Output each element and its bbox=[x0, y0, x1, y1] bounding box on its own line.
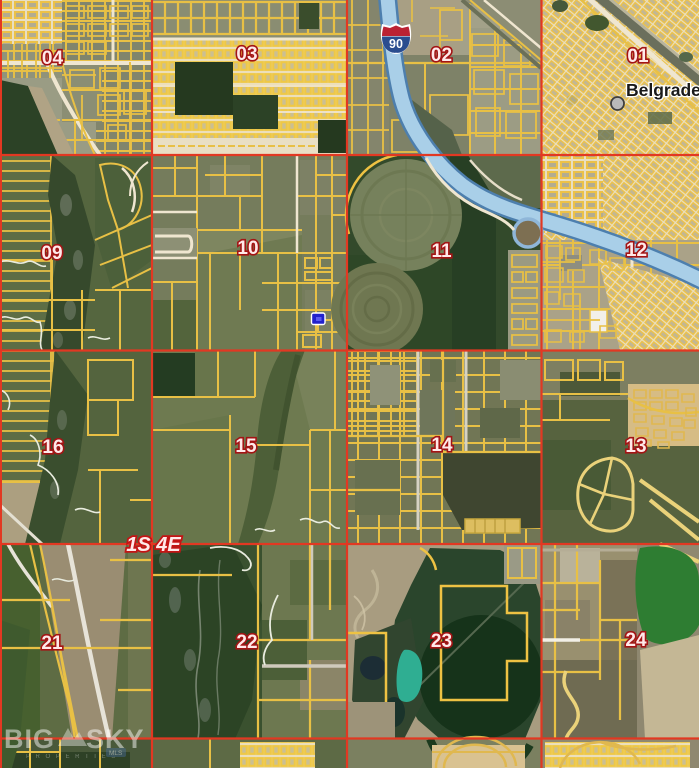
svg-text:24: 24 bbox=[625, 630, 647, 651]
svg-text:23: 23 bbox=[431, 631, 452, 652]
svg-text:22: 22 bbox=[236, 632, 257, 653]
svg-text:BIG: BIG bbox=[4, 724, 55, 754]
svg-text:21: 21 bbox=[41, 633, 63, 654]
svg-text:MLS: MLS bbox=[109, 750, 123, 757]
svg-text:P R O P E R T I E S: P R O P E R T I E S bbox=[26, 754, 117, 760]
svg-text:09: 09 bbox=[41, 243, 62, 264]
svg-text:12: 12 bbox=[626, 240, 647, 261]
svg-text:10: 10 bbox=[237, 238, 258, 259]
svg-text:1S 4E: 1S 4E bbox=[126, 534, 181, 556]
svg-text:15: 15 bbox=[235, 436, 257, 457]
svg-text:13: 13 bbox=[625, 436, 646, 457]
svg-text:90: 90 bbox=[389, 37, 403, 51]
svg-text:02: 02 bbox=[431, 45, 452, 66]
svg-text:11: 11 bbox=[431, 241, 452, 262]
svg-text:03: 03 bbox=[236, 44, 257, 65]
svg-text:04: 04 bbox=[42, 48, 64, 69]
svg-text:16: 16 bbox=[42, 437, 63, 458]
svg-text:01: 01 bbox=[627, 46, 649, 67]
svg-text:Belgrade: Belgrade bbox=[626, 80, 699, 100]
svg-text:14: 14 bbox=[431, 435, 453, 456]
